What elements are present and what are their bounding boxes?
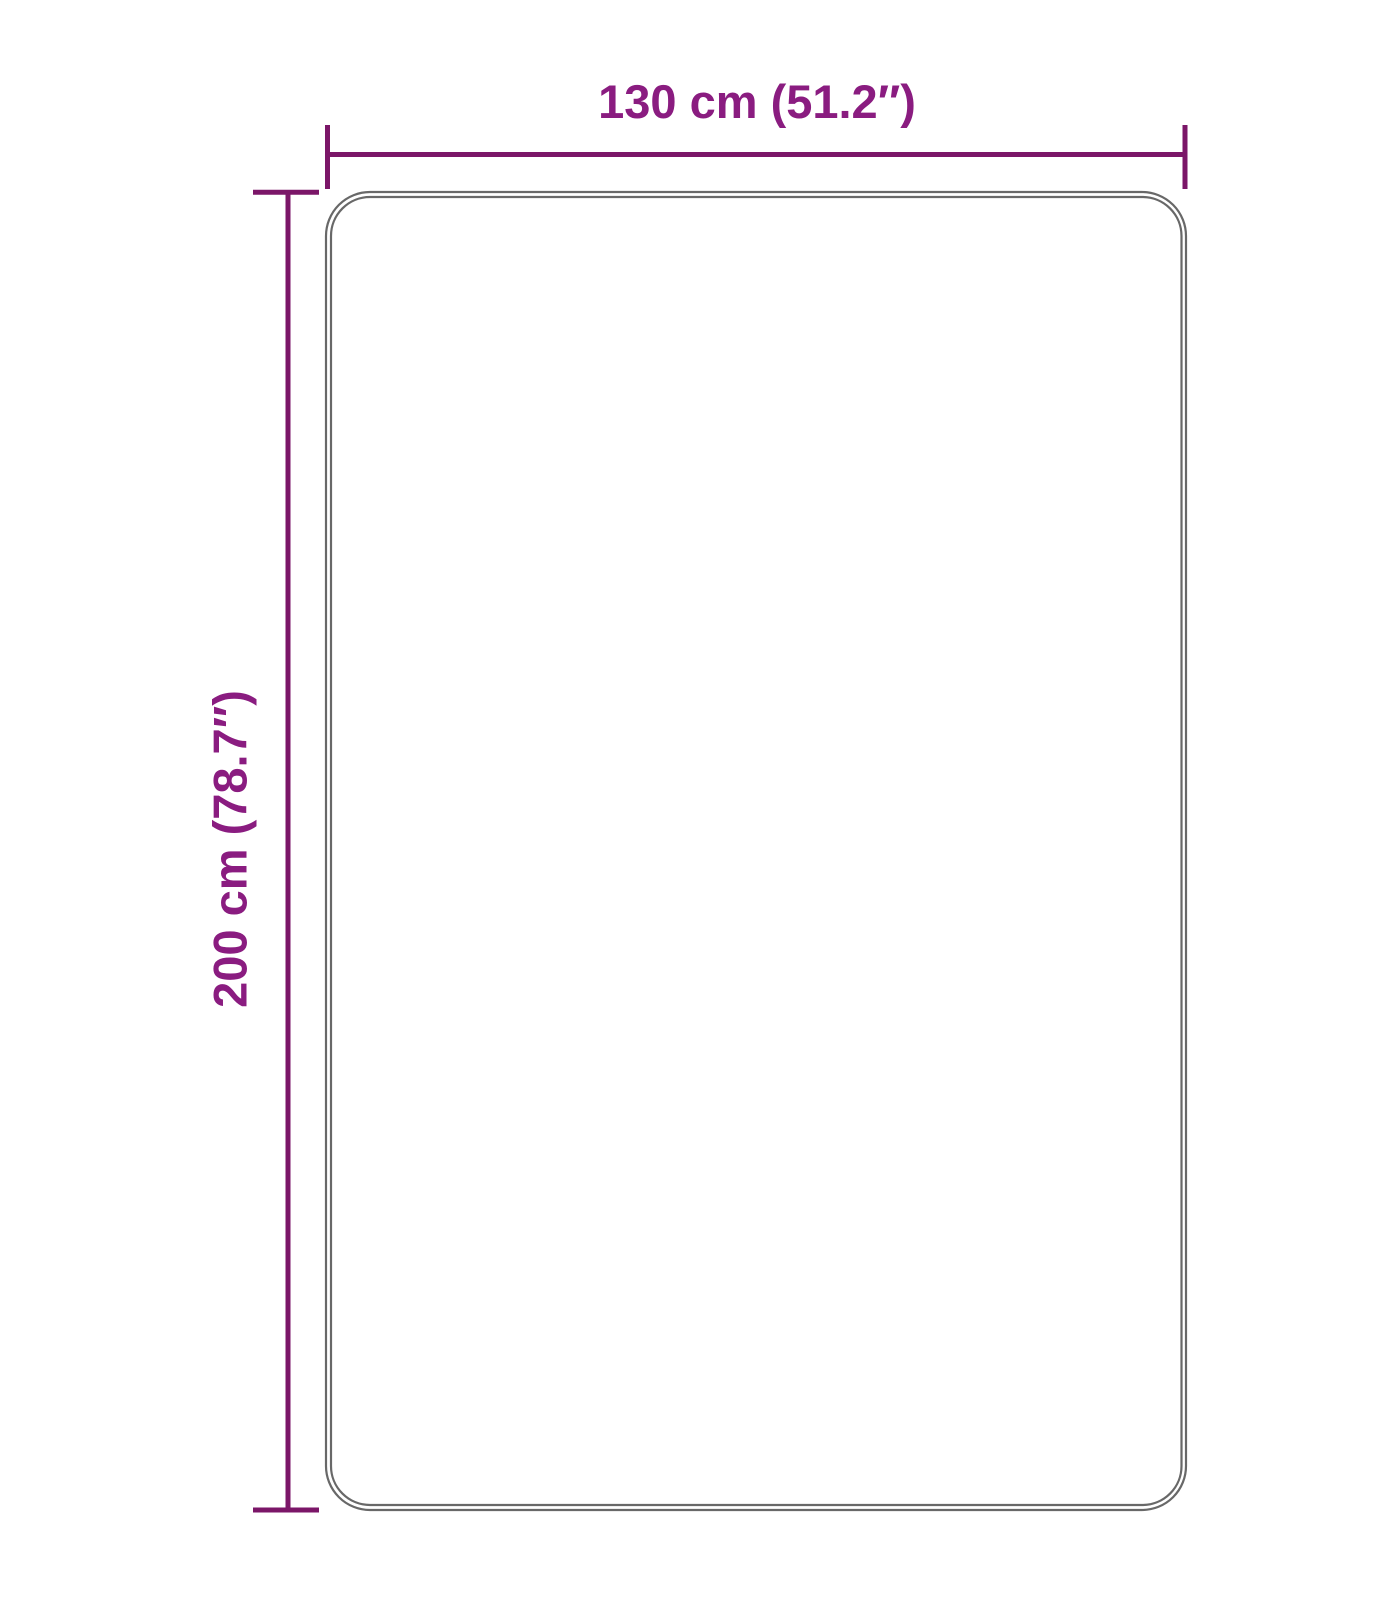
svg-text:200 cm (78.7″): 200 cm (78.7″) <box>204 690 257 1008</box>
svg-text:130 cm (51.2″): 130 cm (51.2″) <box>598 75 916 128</box>
